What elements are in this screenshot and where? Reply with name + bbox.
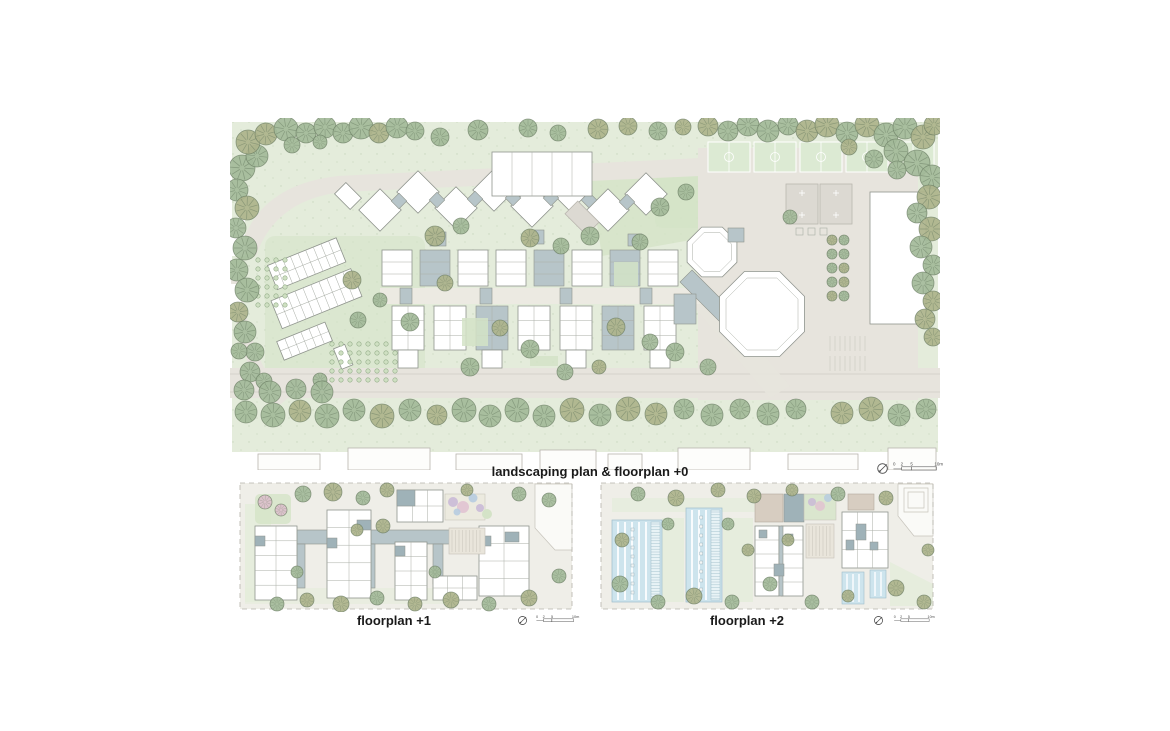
tree-icon	[443, 592, 459, 608]
floorplan-1-panel	[237, 480, 575, 612]
presentation-board: landscaping plan & floorplan +0 0 2 5 10…	[0, 0, 1170, 731]
tree-icon	[560, 398, 584, 422]
tree-icon	[839, 249, 849, 259]
tree-icon	[270, 597, 284, 611]
tree-icon	[645, 403, 667, 425]
main-plan-caption: landscaping plan & floorplan +0	[492, 464, 689, 479]
tree-icon	[259, 381, 281, 403]
svg-text:5: 5	[551, 615, 553, 619]
roof	[848, 494, 874, 510]
tree-icon	[865, 150, 883, 168]
tree-icon	[261, 403, 285, 427]
tree-icon	[521, 229, 539, 247]
tree-icon	[351, 524, 363, 536]
svg-text:10m: 10m	[928, 615, 935, 619]
room-block	[648, 250, 678, 286]
context-building	[348, 448, 430, 470]
tree-icon	[616, 397, 640, 421]
svg-text:5: 5	[908, 615, 910, 619]
tree-icon	[782, 534, 794, 546]
scale-bar: 0 2 5 10m	[893, 614, 937, 624]
svg-text:5: 5	[910, 462, 913, 467]
solar-roof	[686, 508, 722, 602]
tree-icon	[859, 397, 883, 421]
service-room	[397, 490, 415, 506]
tree-icon	[675, 119, 691, 135]
tree-icon	[666, 343, 684, 361]
play-court	[804, 494, 836, 520]
tree-icon	[778, 118, 798, 135]
svg-text:10m: 10m	[572, 615, 579, 619]
tree-icon	[343, 399, 365, 421]
service-room	[759, 530, 767, 538]
service-room	[870, 542, 878, 550]
room-block	[434, 306, 466, 350]
tree-icon	[922, 544, 934, 556]
corridor	[380, 288, 702, 304]
tree-icon	[552, 569, 566, 583]
context-building	[788, 454, 858, 470]
tree-icon	[406, 122, 424, 140]
tree-icon	[701, 404, 723, 426]
tree-icon	[505, 398, 529, 422]
tree-icon	[431, 128, 449, 146]
corridor-node	[640, 288, 652, 304]
tree-icon	[730, 399, 750, 419]
tree-icon	[662, 518, 674, 530]
tree-icon	[827, 235, 837, 245]
tree-icon	[295, 486, 311, 502]
room-block	[496, 250, 526, 286]
tree-icon	[839, 291, 849, 301]
corridor-node	[560, 288, 572, 304]
tree-icon	[631, 487, 645, 501]
tree-icon	[275, 504, 287, 516]
soccer-pitch	[800, 142, 842, 172]
tree-icon	[827, 249, 837, 259]
tree-icon	[314, 118, 336, 138]
tree-icon	[839, 263, 849, 273]
service-room	[505, 532, 519, 542]
tree-icon	[343, 271, 361, 289]
tree-icon	[718, 121, 738, 141]
tree-icon	[686, 588, 702, 604]
room-block	[572, 250, 602, 286]
tree-icon	[461, 484, 473, 496]
tree-icon	[607, 318, 625, 336]
tree-icon	[757, 403, 779, 425]
existing-building	[492, 152, 592, 196]
courtyard-green	[614, 262, 638, 286]
tree-icon	[722, 518, 734, 530]
solar-roof-small	[870, 570, 886, 598]
tree-icon	[651, 595, 665, 609]
tree-icon	[519, 119, 537, 137]
tree-icon	[453, 218, 469, 234]
tree-icon	[589, 404, 611, 426]
tree-icon	[373, 293, 387, 307]
pergola-court	[449, 528, 485, 554]
green-strip	[723, 518, 753, 602]
tree-icon	[300, 593, 314, 607]
tree-icon	[827, 277, 837, 287]
floorplan-2-drawing	[598, 480, 936, 612]
service-room	[395, 546, 405, 556]
tree-icon	[783, 210, 797, 224]
svg-text:2: 2	[543, 615, 545, 619]
tree-icon	[917, 595, 931, 609]
tree-icon	[916, 399, 936, 419]
soccer-pitch	[754, 142, 796, 172]
service-room	[774, 564, 784, 576]
tree-icon	[437, 275, 453, 291]
tree-icon	[399, 399, 421, 421]
tree-icon	[923, 291, 940, 311]
tree-icon	[557, 364, 573, 380]
scale-bar: 0 2 5 10m	[535, 614, 582, 624]
tree-icon	[674, 399, 694, 419]
tree-icon	[258, 495, 272, 509]
tree-icon	[827, 291, 837, 301]
north-arrow-icon	[876, 462, 889, 475]
tree-icon	[233, 236, 257, 260]
tree-icon	[255, 123, 277, 145]
tree-icon	[553, 238, 569, 254]
courtyard-green	[462, 318, 488, 346]
tree-icon	[401, 313, 419, 331]
street-stub	[482, 350, 502, 368]
tree-icon	[632, 234, 648, 250]
tree-icon	[910, 236, 932, 258]
tree-icon	[521, 590, 537, 606]
north-arrow-icon	[873, 615, 884, 626]
tree-icon	[786, 399, 806, 419]
tree-icon	[235, 401, 257, 423]
tree-icon	[841, 139, 857, 155]
svg-text:0: 0	[893, 462, 896, 467]
tree-icon	[912, 272, 934, 294]
tree-icon	[839, 235, 849, 245]
tree-icon	[642, 334, 658, 350]
tree-icon	[479, 405, 501, 427]
tree-icon	[588, 119, 608, 139]
context-building	[258, 454, 320, 470]
tree-icon	[796, 120, 818, 142]
basketball-court	[820, 184, 852, 224]
roof	[784, 494, 804, 522]
floorplan-1-drawing	[237, 480, 575, 612]
courtyard-green	[530, 356, 558, 366]
tree-icon	[542, 493, 556, 507]
tree-icon	[915, 309, 935, 329]
tree-icon	[612, 576, 628, 592]
tree-icon	[831, 402, 853, 424]
svg-text:2: 2	[901, 462, 904, 467]
tree-icon	[230, 259, 248, 281]
tree-icon	[492, 320, 508, 336]
tree-icon	[289, 400, 311, 422]
service-room	[856, 524, 866, 540]
tree-icon	[651, 198, 669, 216]
tree-icon	[763, 577, 777, 591]
tree-icon	[512, 487, 526, 501]
tree-icon	[234, 321, 256, 343]
link-wing	[674, 294, 696, 324]
green-strip	[662, 518, 684, 602]
scale-bar: 0 2 5 10m	[892, 461, 946, 473]
corridor-node	[400, 288, 412, 304]
room-block	[560, 306, 592, 350]
tree-icon	[550, 125, 566, 141]
tree-icon	[427, 405, 447, 425]
corridor	[779, 526, 783, 596]
tree-icon	[879, 491, 893, 505]
tree-icon	[747, 489, 761, 503]
tree-icon	[230, 218, 246, 238]
tree-icon	[711, 483, 725, 497]
tree-icon	[725, 595, 739, 609]
tree-icon	[452, 398, 476, 422]
floorplan-1-caption: floorplan +1	[357, 613, 431, 628]
play-court	[445, 494, 492, 521]
tree-icon	[737, 118, 759, 136]
tree-icon	[315, 404, 339, 428]
tree-icon	[386, 118, 408, 138]
tree-icon	[284, 137, 300, 153]
tree-icon	[425, 226, 445, 246]
tree-icon	[924, 328, 940, 346]
service-room	[327, 538, 337, 548]
svg-text:0: 0	[894, 615, 896, 619]
tree-icon	[615, 533, 629, 547]
tree-icon	[286, 379, 306, 399]
tree-icon	[311, 381, 333, 403]
tree-icon	[356, 491, 370, 505]
svg-text:2: 2	[900, 615, 902, 619]
tree-icon	[291, 566, 303, 578]
tree-icon	[842, 590, 854, 602]
tree-icon	[805, 595, 819, 609]
tree-icon	[533, 405, 555, 427]
tree-icon	[350, 312, 366, 328]
street-stub	[398, 350, 418, 368]
tree-icon	[698, 118, 718, 136]
pavilion-large	[720, 272, 805, 357]
tree-icon	[482, 597, 496, 611]
site-plan-drawing	[230, 118, 940, 470]
floorplan-2-caption: floorplan +2	[710, 613, 784, 628]
tree-icon	[333, 596, 349, 612]
tree-icon	[668, 490, 684, 506]
soccer-pitch	[708, 142, 750, 172]
room-block	[534, 250, 564, 286]
tree-icon	[831, 487, 845, 501]
tree-icon	[461, 358, 479, 376]
tree-icon	[888, 161, 906, 179]
tree-icon	[376, 519, 390, 533]
tree-icon	[234, 380, 254, 400]
tree-icon	[581, 227, 599, 245]
tree-icon	[370, 404, 394, 428]
tree-icon	[408, 597, 422, 611]
tree-icon	[757, 120, 779, 142]
tree-icon	[827, 263, 837, 273]
tree-icon	[231, 343, 247, 359]
tree-icon	[678, 184, 694, 200]
tree-icon	[468, 120, 488, 140]
tree-icon	[888, 580, 904, 596]
tree-icon	[592, 360, 606, 374]
svg-text:10m: 10m	[934, 462, 943, 467]
tree-icon	[324, 483, 342, 501]
tree-icon	[313, 135, 327, 149]
tree-icon	[235, 278, 259, 302]
tree-icon	[619, 118, 637, 135]
svg-text:0: 0	[536, 615, 538, 619]
corridor-node	[480, 288, 492, 304]
tree-icon	[246, 343, 264, 361]
context-building	[678, 448, 750, 470]
site-plan-panel	[230, 118, 940, 470]
tree-icon	[786, 484, 798, 496]
tree-icon	[649, 122, 667, 140]
pergola-court	[806, 524, 834, 558]
service-room	[846, 540, 854, 550]
tree-icon	[521, 340, 539, 358]
tree-icon	[839, 277, 849, 287]
tree-icon	[370, 591, 384, 605]
tree-icon	[742, 544, 754, 556]
room-block	[458, 250, 488, 286]
tree-icon	[700, 359, 716, 375]
tree-icon	[230, 302, 248, 322]
tree-icon	[429, 566, 441, 578]
north-arrow-icon	[517, 615, 528, 626]
tree-icon	[888, 404, 910, 426]
annex	[728, 228, 744, 242]
floorplan-2-panel	[598, 480, 936, 612]
street	[230, 368, 940, 398]
stair-hatch	[711, 510, 720, 600]
tree-icon	[235, 196, 259, 220]
tree-icon	[380, 483, 394, 497]
service-room	[255, 536, 265, 546]
room-block	[382, 250, 412, 286]
